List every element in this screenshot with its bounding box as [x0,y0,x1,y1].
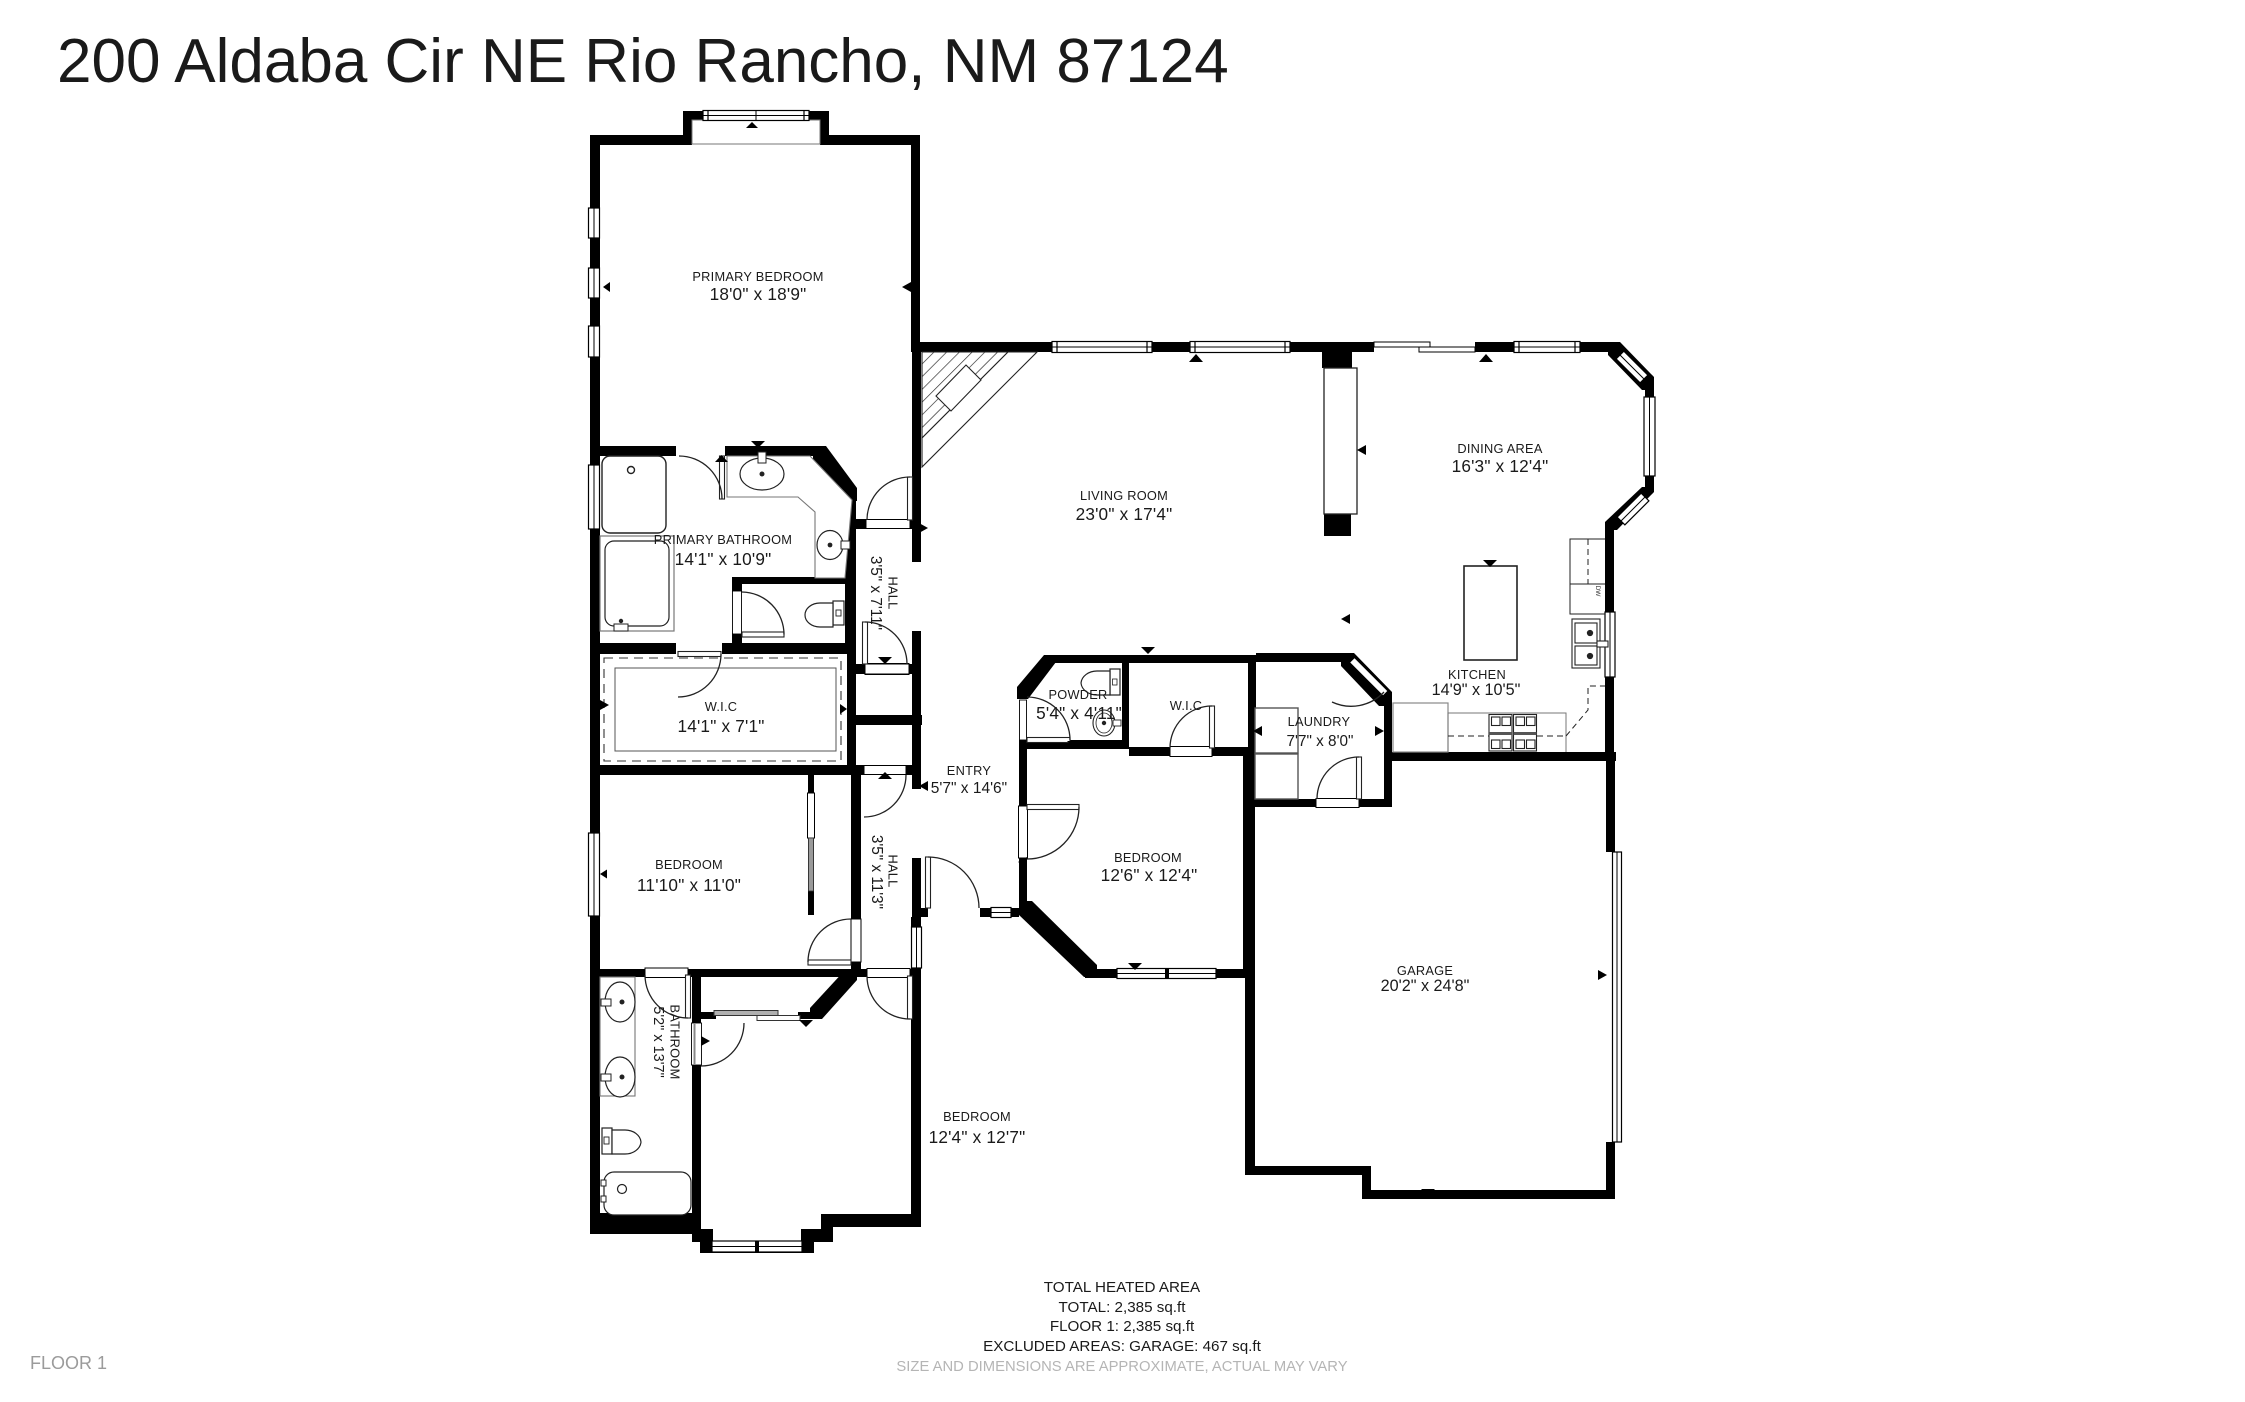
svg-text:ENTRY: ENTRY [947,763,992,778]
svg-text:14'9" x 10'5": 14'9" x 10'5" [1432,681,1521,699]
svg-text:FLOOR 1: FLOOR 1 [30,1353,107,1373]
svg-text:BEDROOM: BEDROOM [943,1109,1011,1124]
svg-text:23'0" x 17'4": 23'0" x 17'4" [1076,504,1173,524]
svg-text:POWDER: POWDER [1048,687,1107,702]
svg-text:W.I.C: W.I.C [705,699,738,714]
svg-text:FLOOR 1: 2,385 sq.ft: FLOOR 1: 2,385 sq.ft [1050,1318,1195,1335]
svg-text:14'1" x 10'9": 14'1" x 10'9" [675,549,772,569]
svg-text:14'1" x 7'1": 14'1" x 7'1" [677,716,764,736]
svg-text:SIZE AND DIMENSIONS ARE APPROX: SIZE AND DIMENSIONS ARE APPROXIMATE, ACT… [896,1359,1347,1375]
svg-text:DW: DW [1594,586,1601,598]
svg-text:200 Aldaba Cir NE Rio Rancho,: 200 Aldaba Cir NE Rio Rancho, NM 87124 [57,27,1229,96]
svg-text:7'7" x 8'0": 7'7" x 8'0" [1287,733,1354,750]
svg-text:KITCHEN: KITCHEN [1448,667,1506,682]
svg-text:5'2" x 13'7": 5'2" x 13'7" [650,1006,666,1077]
svg-text:BEDROOM: BEDROOM [1114,850,1182,865]
svg-text:DINING AREA: DINING AREA [1457,441,1542,456]
svg-text:TOTAL HEATED AREA: TOTAL HEATED AREA [1044,1279,1201,1296]
svg-text:TOTAL: 2,385 sq.ft: TOTAL: 2,385 sq.ft [1059,1299,1187,1316]
svg-text:12'6" x 12'4": 12'6" x 12'4" [1101,865,1198,885]
svg-text:12'4" x 12'7": 12'4" x 12'7" [929,1127,1026,1147]
svg-text:GARAGE: GARAGE [1397,963,1453,978]
svg-text:BATHROOM: BATHROOM [668,1005,683,1080]
svg-text:5'4" x 4'11": 5'4" x 4'11" [1036,703,1122,723]
svg-text:W.I.C: W.I.C [1170,698,1203,713]
svg-text:BEDROOM: BEDROOM [655,857,723,872]
svg-text:16'3" x 12'4": 16'3" x 12'4" [1452,456,1549,476]
svg-text:18'0" x 18'9": 18'0" x 18'9" [710,284,807,304]
svg-text:LIVING ROOM: LIVING ROOM [1080,488,1168,503]
svg-text:3'5" x 7'11": 3'5" x 7'11" [867,556,884,630]
svg-text:3'5" x 11'3": 3'5" x 11'3" [868,835,885,909]
svg-text:PRIMARY BEDROOM: PRIMARY BEDROOM [692,269,823,284]
svg-text:20'2" x 24'8": 20'2" x 24'8" [1381,977,1470,995]
svg-text:HALL: HALL [886,854,901,887]
svg-text:HALL: HALL [886,576,901,609]
svg-text:11'10" x 11'0": 11'10" x 11'0" [637,875,741,895]
svg-text:PRIMARY BATHROOM: PRIMARY BATHROOM [654,532,792,547]
svg-text:EXCLUDED AREAS: GARAGE: 467 sq: EXCLUDED AREAS: GARAGE: 467 sq.ft [983,1338,1261,1355]
svg-text:LAUNDRY: LAUNDRY [1288,714,1351,729]
svg-text:5'7" x 14'6": 5'7" x 14'6" [931,780,1007,797]
